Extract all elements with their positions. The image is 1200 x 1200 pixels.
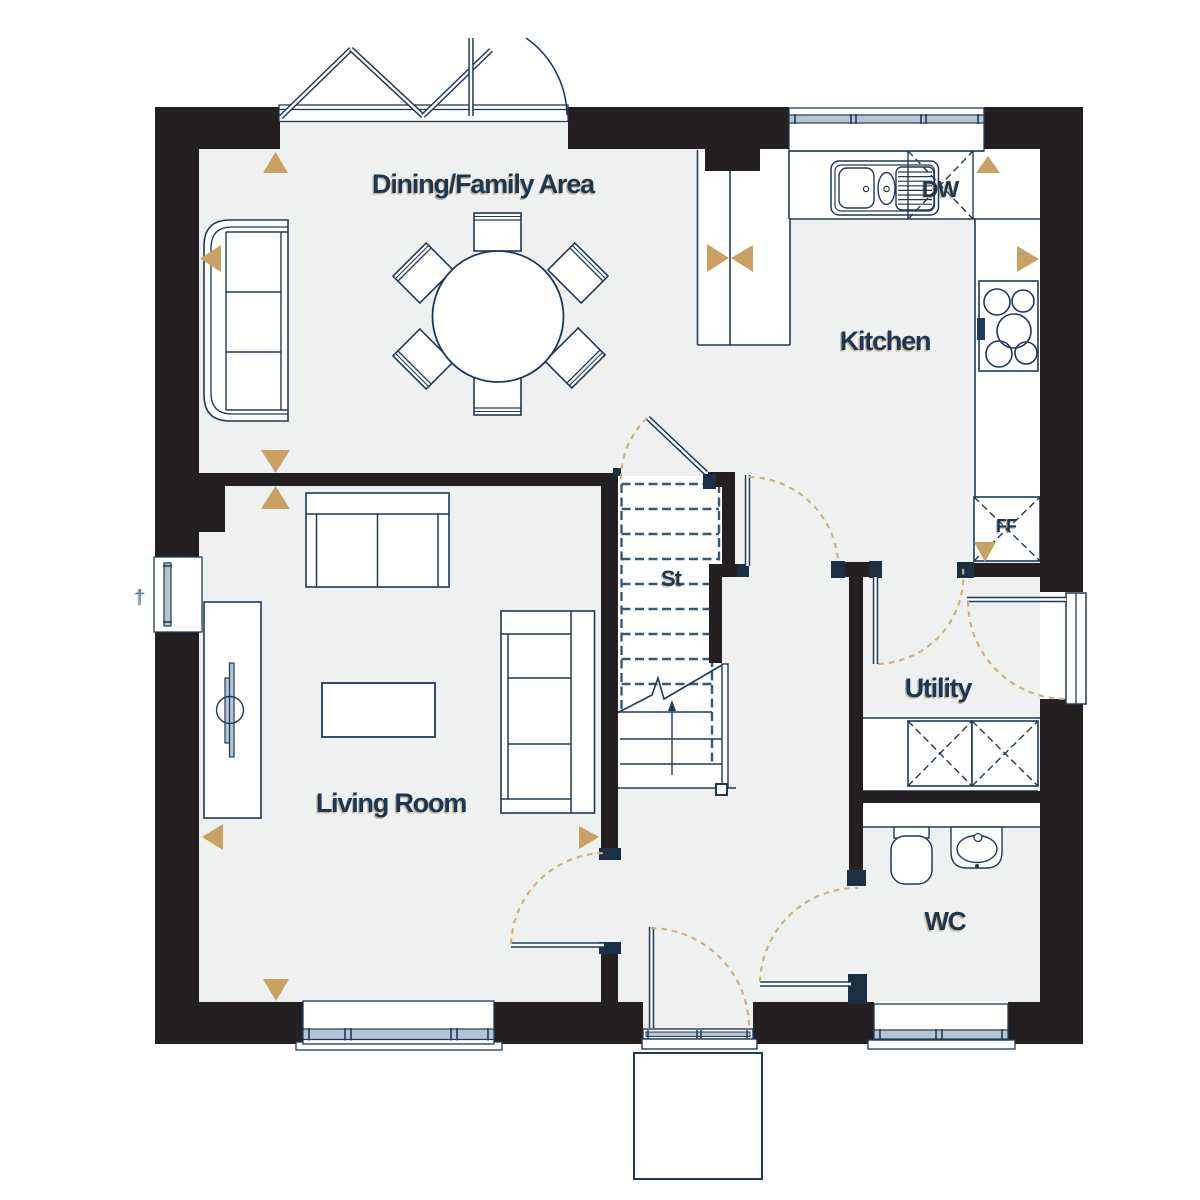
svg-text:FF: FF: [996, 516, 1017, 536]
svg-text:Dining/Family Area: Dining/Family Area: [372, 169, 596, 199]
svg-text:St: St: [661, 566, 683, 591]
svg-text:Living Room: Living Room: [316, 788, 466, 818]
svg-text:†: †: [134, 587, 145, 609]
svg-text:WC: WC: [925, 906, 967, 936]
svg-text:Kitchen: Kitchen: [840, 326, 931, 356]
svg-text:DW: DW: [922, 176, 960, 202]
svg-text:Utility: Utility: [905, 673, 973, 703]
